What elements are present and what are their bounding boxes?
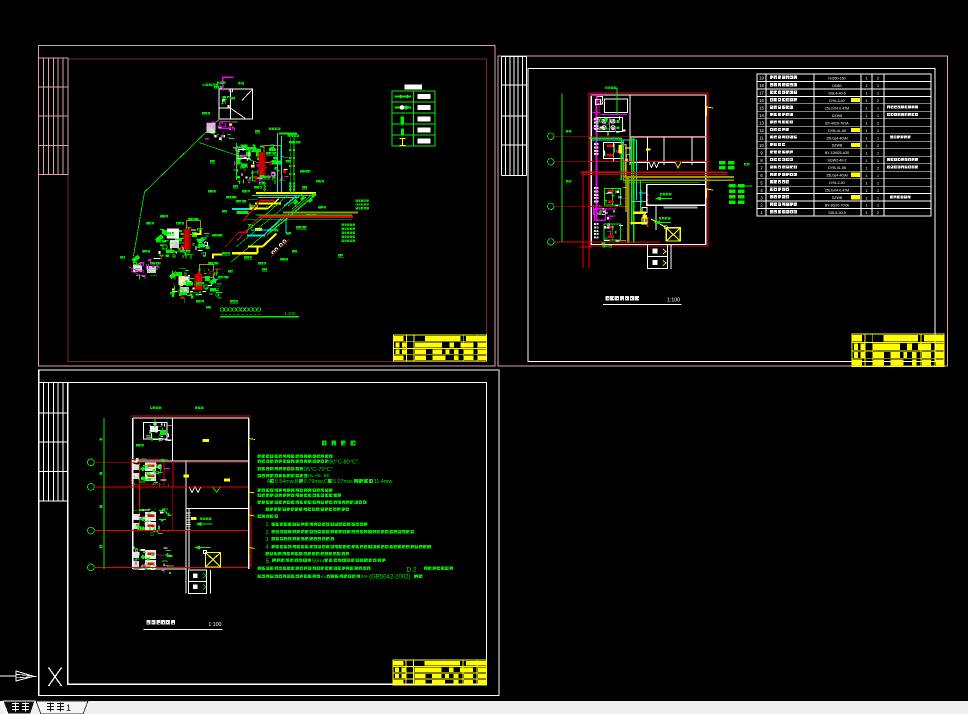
svg-text:19: 19 xyxy=(759,76,764,81)
svg-text:SGW2-40-2: SGW2-40-2 xyxy=(828,159,847,163)
svg-text:2.: 2. xyxy=(266,530,270,536)
svg-text:25LGX4 0.47M: 25LGX4 0.47M xyxy=(825,189,849,193)
svg-text:5.: 5. xyxy=(266,559,271,565)
svg-text:25LG(4-40)M: 25LG(4-40)M xyxy=(826,136,847,140)
svg-text:DZW8: DZW8 xyxy=(832,114,842,118)
svg-text:HL AE. BE: HL AE. BE xyxy=(308,473,330,478)
svg-text:5.07mw,: 5.07mw, xyxy=(333,479,354,485)
svg-text:10: 10 xyxy=(759,143,764,148)
svg-text:BY-12M25-A30: BY-12M25-A30 xyxy=(825,151,849,155)
svg-text:14: 14 xyxy=(759,113,764,118)
svg-text:4.: 4. xyxy=(266,545,270,551)
svg-text:DY6-2-40: DY6-2-40 xyxy=(829,181,844,185)
svg-text:DY6-3-40: DY6-3-40 xyxy=(829,99,844,103)
svg-text:>> (GB5042-2002): >> (GB5042-2002) xyxy=(360,575,410,581)
svg-text:11.4mw.: 11.4mw. xyxy=(374,479,394,485)
svg-text:BY-8G20-70YA: BY-8G20-70YA xyxy=(825,204,850,208)
svg-text:90°C-80°C".: 90°C-80°C". xyxy=(329,460,360,466)
svg-text:D.2: D.2 xyxy=(407,567,418,574)
svg-text:DYB-4L-08: DYB-4L-08 xyxy=(828,129,846,133)
svg-text:5.54mw,B: 5.54mw,B xyxy=(275,479,299,485)
svg-text:17: 17 xyxy=(759,91,764,96)
svg-text:DZWB: DZWB xyxy=(832,196,843,200)
svg-text:SGL4-40-5: SGL4-40-5 xyxy=(828,91,846,95)
svg-text:BY-4020-70YA: BY-4020-70YA xyxy=(825,121,849,125)
svg-text:13: 13 xyxy=(759,121,764,126)
svg-text:16: 16 xyxy=(759,98,764,103)
svg-text:ISG50-160: ISG50-160 xyxy=(828,76,845,80)
svg-text:18: 18 xyxy=(759,83,764,88)
svg-text:12: 12 xyxy=(759,128,764,133)
svg-text:1:100: 1:100 xyxy=(284,311,296,316)
svg-text:DZWB: DZWB xyxy=(832,144,843,148)
svg-text:DYB-4L-08: DYB-4L-08 xyxy=(828,166,846,170)
svg-text:1:100: 1:100 xyxy=(667,297,680,303)
svg-text:3.: 3. xyxy=(266,537,270,543)
svg-text:25LGX4 0.47M: 25LGX4 0.47M xyxy=(825,106,849,110)
svg-text:1:100: 1:100 xyxy=(208,622,221,628)
svg-text:SGL5-40-5: SGL5-40-5 xyxy=(828,211,846,215)
svg-text:11: 11 xyxy=(759,135,764,140)
svg-text:<<: << xyxy=(321,574,327,580)
svg-text:1: 1 xyxy=(66,703,71,713)
svg-text:25LG(4-40)M: 25LG(4-40)M xyxy=(826,174,847,178)
svg-text:15: 15 xyxy=(759,106,764,111)
svg-text:1.: 1. xyxy=(266,522,270,528)
svg-text:DN50: DN50 xyxy=(832,84,841,88)
svg-text:0.79mw,C: 0.79mw,C xyxy=(304,479,328,485)
